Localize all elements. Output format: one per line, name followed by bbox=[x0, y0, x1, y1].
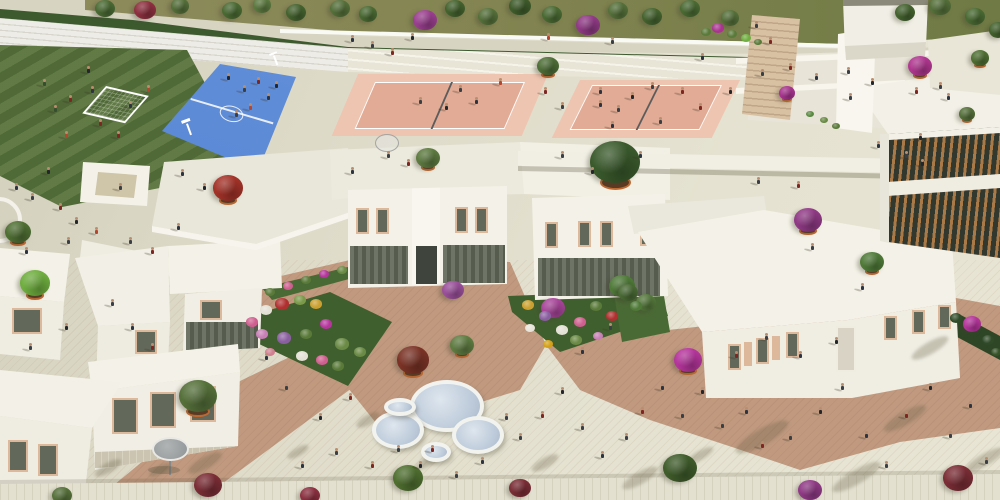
person bbox=[811, 243, 814, 251]
person bbox=[799, 351, 802, 359]
person-body bbox=[915, 90, 918, 95]
person bbox=[475, 97, 478, 105]
person-body bbox=[561, 154, 564, 159]
flower-bush bbox=[630, 301, 642, 311]
person bbox=[819, 407, 822, 415]
person-body bbox=[811, 246, 814, 251]
person bbox=[371, 461, 374, 469]
person bbox=[371, 41, 374, 49]
person bbox=[761, 69, 764, 77]
tree bbox=[794, 208, 822, 232]
person-body bbox=[591, 170, 594, 175]
flower-bush bbox=[246, 317, 258, 327]
person-body bbox=[609, 326, 612, 331]
person bbox=[885, 461, 888, 469]
person bbox=[351, 167, 354, 175]
person bbox=[721, 421, 724, 429]
tree bbox=[194, 473, 222, 497]
person-body bbox=[481, 460, 484, 465]
person-body bbox=[455, 474, 458, 479]
person-body bbox=[929, 386, 932, 391]
person-body bbox=[419, 100, 422, 105]
person-body bbox=[701, 56, 704, 61]
person bbox=[351, 35, 354, 43]
person bbox=[499, 78, 502, 86]
person-body bbox=[541, 414, 544, 419]
campus-aerial-rendering bbox=[0, 0, 1000, 500]
person-body bbox=[95, 230, 98, 235]
person-body bbox=[789, 66, 792, 71]
person bbox=[611, 37, 614, 45]
person-body bbox=[129, 104, 132, 109]
flower-bush bbox=[316, 355, 328, 365]
flower-bush bbox=[556, 325, 568, 335]
person-body bbox=[91, 89, 94, 94]
person-body bbox=[561, 390, 564, 395]
person bbox=[921, 159, 924, 167]
person-body bbox=[387, 154, 390, 159]
person bbox=[227, 73, 230, 81]
person-body bbox=[499, 81, 502, 86]
person bbox=[69, 95, 72, 103]
tree bbox=[963, 316, 981, 331]
sprite-layer bbox=[0, 0, 1000, 500]
person bbox=[581, 423, 584, 431]
person-body bbox=[835, 340, 838, 345]
person bbox=[541, 411, 544, 419]
person-body bbox=[257, 80, 260, 85]
person bbox=[519, 433, 522, 441]
person-body bbox=[701, 390, 704, 395]
person-body bbox=[349, 396, 352, 401]
flower-bush bbox=[590, 301, 602, 311]
person bbox=[25, 247, 28, 255]
tree bbox=[618, 284, 638, 301]
person-body bbox=[939, 85, 942, 90]
person bbox=[841, 383, 844, 391]
flower-bush bbox=[606, 311, 618, 321]
person-body bbox=[871, 81, 874, 86]
person-body bbox=[59, 206, 62, 211]
person-body bbox=[75, 220, 78, 225]
person-body bbox=[43, 82, 46, 87]
tree bbox=[413, 10, 437, 30]
flower-bush bbox=[265, 288, 275, 296]
circular-canopy bbox=[384, 398, 416, 416]
person-body bbox=[699, 106, 702, 111]
tree bbox=[171, 0, 189, 14]
person-body bbox=[371, 464, 374, 469]
flower-bush bbox=[300, 329, 312, 339]
person-body bbox=[757, 180, 760, 185]
person-body bbox=[15, 186, 18, 191]
flower-bush bbox=[820, 117, 828, 123]
person-body bbox=[475, 100, 478, 105]
person-body bbox=[203, 186, 206, 191]
tree bbox=[642, 8, 662, 25]
person-body bbox=[319, 416, 322, 421]
person bbox=[387, 151, 390, 159]
flower-bush bbox=[950, 313, 962, 323]
flower-bush bbox=[310, 299, 322, 309]
tree bbox=[442, 281, 464, 300]
person-body bbox=[249, 106, 252, 111]
person-body bbox=[65, 326, 68, 331]
person bbox=[599, 87, 602, 95]
person-body bbox=[391, 51, 394, 56]
tree bbox=[213, 175, 243, 201]
person-body bbox=[849, 96, 852, 101]
circular-canopy bbox=[372, 411, 424, 449]
person-body bbox=[681, 90, 684, 95]
flower-bush bbox=[522, 300, 534, 310]
person-body bbox=[65, 134, 68, 139]
person bbox=[581, 347, 584, 355]
person-body bbox=[151, 250, 154, 255]
person bbox=[129, 101, 132, 109]
umbrella-canopy bbox=[152, 437, 189, 461]
tree bbox=[779, 86, 795, 100]
tree bbox=[798, 480, 822, 500]
person-body bbox=[797, 184, 800, 189]
person bbox=[735, 351, 738, 359]
person bbox=[591, 167, 594, 175]
person bbox=[847, 67, 850, 75]
person bbox=[701, 53, 704, 61]
person bbox=[397, 445, 400, 453]
tree bbox=[397, 346, 429, 373]
flower-bush bbox=[991, 348, 1000, 356]
person-body bbox=[285, 386, 288, 391]
person bbox=[659, 117, 662, 125]
person-body bbox=[335, 451, 338, 456]
person-body bbox=[47, 170, 50, 175]
person-body bbox=[721, 424, 724, 429]
flower-bush bbox=[701, 28, 711, 36]
person bbox=[117, 131, 120, 139]
person-body bbox=[789, 436, 792, 441]
tree bbox=[989, 22, 1000, 37]
person-body bbox=[351, 38, 354, 43]
person-body bbox=[129, 240, 132, 245]
person-body bbox=[947, 96, 950, 101]
person-body bbox=[561, 105, 564, 110]
person bbox=[969, 401, 972, 409]
person bbox=[561, 387, 564, 395]
person bbox=[455, 471, 458, 479]
person-body bbox=[761, 72, 764, 77]
tree bbox=[416, 148, 440, 168]
tree-shadow bbox=[732, 415, 792, 459]
tree bbox=[860, 252, 884, 272]
person bbox=[651, 82, 654, 90]
person bbox=[699, 103, 702, 111]
person bbox=[65, 131, 68, 139]
person bbox=[611, 121, 614, 129]
person-body bbox=[755, 24, 758, 29]
person-body bbox=[659, 120, 662, 125]
flower-bush bbox=[539, 311, 551, 321]
person bbox=[459, 85, 462, 93]
person bbox=[15, 183, 18, 191]
person bbox=[181, 169, 184, 177]
flower-bush bbox=[337, 266, 347, 274]
person-body bbox=[905, 414, 908, 419]
flower-bush bbox=[754, 39, 762, 45]
tree bbox=[134, 1, 156, 20]
person bbox=[877, 141, 880, 149]
person-body bbox=[397, 448, 400, 453]
person bbox=[267, 93, 270, 101]
tree bbox=[971, 50, 989, 65]
person bbox=[419, 97, 422, 105]
tree bbox=[959, 107, 975, 121]
person bbox=[47, 167, 50, 175]
tree-shadow bbox=[93, 456, 124, 480]
tree bbox=[20, 270, 50, 296]
person bbox=[235, 110, 238, 118]
person-body bbox=[631, 95, 634, 100]
person bbox=[861, 283, 864, 291]
person bbox=[249, 103, 252, 111]
tree bbox=[253, 0, 271, 13]
tree bbox=[965, 8, 985, 25]
person-body bbox=[847, 70, 850, 75]
flower-bush bbox=[277, 332, 291, 343]
person-body bbox=[661, 386, 664, 391]
person-body bbox=[919, 136, 922, 141]
flower-bush bbox=[712, 23, 724, 33]
person bbox=[765, 333, 768, 341]
tree bbox=[450, 335, 474, 355]
person bbox=[419, 461, 422, 469]
person bbox=[761, 441, 764, 449]
person bbox=[547, 33, 550, 41]
person-body bbox=[861, 286, 864, 291]
tree bbox=[286, 4, 306, 21]
tree-shadow bbox=[620, 463, 661, 493]
person bbox=[639, 151, 642, 159]
person bbox=[407, 159, 410, 167]
person bbox=[31, 193, 34, 201]
person-body bbox=[119, 186, 122, 191]
flower-bush bbox=[806, 111, 814, 117]
person bbox=[601, 451, 604, 459]
circular-canopy bbox=[452, 416, 504, 454]
person bbox=[617, 105, 620, 113]
tree bbox=[509, 479, 531, 498]
person bbox=[67, 237, 70, 245]
person-body bbox=[505, 416, 508, 421]
tree bbox=[929, 0, 951, 15]
person bbox=[631, 92, 634, 100]
person-body bbox=[445, 106, 448, 111]
flower-bush bbox=[574, 317, 586, 327]
flower-bush bbox=[354, 347, 366, 357]
tree bbox=[576, 15, 600, 35]
person-body bbox=[819, 410, 822, 415]
person bbox=[701, 387, 704, 395]
person bbox=[815, 73, 818, 81]
person-body bbox=[519, 436, 522, 441]
tree bbox=[445, 0, 465, 17]
person-body bbox=[25, 250, 28, 255]
person-body bbox=[681, 414, 684, 419]
person bbox=[681, 411, 684, 419]
person bbox=[929, 383, 932, 391]
tree bbox=[5, 221, 31, 243]
person-body bbox=[69, 98, 72, 103]
person-body bbox=[131, 326, 134, 331]
person-body bbox=[729, 90, 732, 95]
person bbox=[609, 323, 612, 331]
person-body bbox=[177, 226, 180, 231]
person-body bbox=[29, 346, 32, 351]
person bbox=[99, 119, 102, 127]
person bbox=[147, 85, 150, 93]
person-body bbox=[227, 76, 230, 81]
person bbox=[411, 33, 414, 41]
person-body bbox=[611, 124, 614, 129]
person bbox=[949, 431, 952, 439]
person bbox=[265, 353, 268, 361]
person-body bbox=[815, 76, 818, 81]
person-body bbox=[581, 426, 584, 431]
person bbox=[131, 323, 134, 331]
person bbox=[681, 87, 684, 95]
person-body bbox=[641, 410, 644, 415]
person bbox=[865, 431, 868, 439]
person-body bbox=[87, 69, 90, 74]
person-body bbox=[67, 240, 70, 245]
person-body bbox=[625, 436, 628, 441]
person-body bbox=[905, 154, 908, 159]
person bbox=[301, 461, 304, 469]
flower-bush bbox=[593, 332, 603, 340]
tree-shadow bbox=[909, 332, 951, 363]
person bbox=[797, 181, 800, 189]
person bbox=[561, 151, 564, 159]
flower-bush bbox=[275, 298, 289, 309]
tree bbox=[95, 0, 115, 17]
person-body bbox=[949, 434, 952, 439]
flower-bush bbox=[332, 361, 344, 371]
person bbox=[119, 183, 122, 191]
tree bbox=[537, 57, 559, 76]
person bbox=[905, 151, 908, 159]
person-body bbox=[117, 134, 120, 139]
person bbox=[275, 81, 278, 89]
person bbox=[789, 63, 792, 71]
person bbox=[391, 48, 394, 56]
person bbox=[75, 217, 78, 225]
person bbox=[769, 37, 772, 45]
tree bbox=[52, 487, 72, 500]
flower-bush bbox=[741, 34, 751, 42]
person-body bbox=[265, 356, 268, 361]
person-body bbox=[799, 354, 802, 359]
flower-bush bbox=[982, 335, 994, 345]
person bbox=[985, 457, 988, 465]
person-body bbox=[243, 88, 246, 93]
person-body bbox=[147, 88, 150, 93]
umbrella-shadow bbox=[148, 466, 180, 474]
person-body bbox=[581, 350, 584, 355]
person-body bbox=[599, 90, 602, 95]
flower-bush bbox=[296, 351, 308, 361]
tree-shadow bbox=[530, 451, 561, 475]
person bbox=[757, 177, 760, 185]
person-body bbox=[407, 162, 410, 167]
tree bbox=[179, 380, 217, 412]
person-body bbox=[841, 386, 844, 391]
person bbox=[129, 237, 132, 245]
person-body bbox=[31, 196, 34, 201]
tree bbox=[300, 487, 320, 500]
person bbox=[915, 87, 918, 95]
person bbox=[431, 445, 434, 453]
person bbox=[257, 77, 260, 85]
person bbox=[349, 393, 352, 401]
tree bbox=[542, 6, 562, 23]
person bbox=[177, 223, 180, 231]
tree bbox=[590, 141, 640, 184]
person bbox=[87, 66, 90, 74]
person-body bbox=[769, 40, 772, 45]
person bbox=[544, 87, 547, 95]
person-body bbox=[54, 108, 57, 113]
person bbox=[849, 93, 852, 101]
flower-bush bbox=[320, 319, 332, 329]
flower-bush bbox=[525, 324, 535, 332]
person-body bbox=[865, 434, 868, 439]
person bbox=[335, 448, 338, 456]
tree bbox=[222, 2, 242, 19]
person-body bbox=[151, 346, 154, 351]
person-body bbox=[969, 404, 972, 409]
flower-bush bbox=[260, 305, 272, 315]
person-body bbox=[301, 464, 304, 469]
person-body bbox=[181, 172, 184, 177]
person-body bbox=[651, 85, 654, 90]
person bbox=[445, 103, 448, 111]
tree bbox=[680, 0, 700, 17]
tree bbox=[674, 348, 702, 372]
flower-bush bbox=[335, 338, 349, 349]
person bbox=[599, 100, 602, 108]
person-body bbox=[371, 44, 374, 49]
person-body bbox=[765, 336, 768, 341]
person bbox=[871, 78, 874, 86]
person-body bbox=[235, 113, 238, 118]
person bbox=[319, 413, 322, 421]
person-body bbox=[267, 96, 270, 101]
tree bbox=[721, 10, 739, 25]
person-body bbox=[275, 84, 278, 89]
person-body bbox=[99, 122, 102, 127]
person-body bbox=[111, 302, 114, 307]
tree bbox=[895, 4, 915, 21]
person bbox=[789, 433, 792, 441]
person bbox=[919, 133, 922, 141]
tree bbox=[663, 454, 697, 483]
tree bbox=[330, 0, 350, 17]
flower-bush bbox=[301, 276, 311, 284]
person bbox=[151, 247, 154, 255]
person bbox=[54, 105, 57, 113]
person bbox=[561, 102, 564, 110]
person-body bbox=[885, 464, 888, 469]
